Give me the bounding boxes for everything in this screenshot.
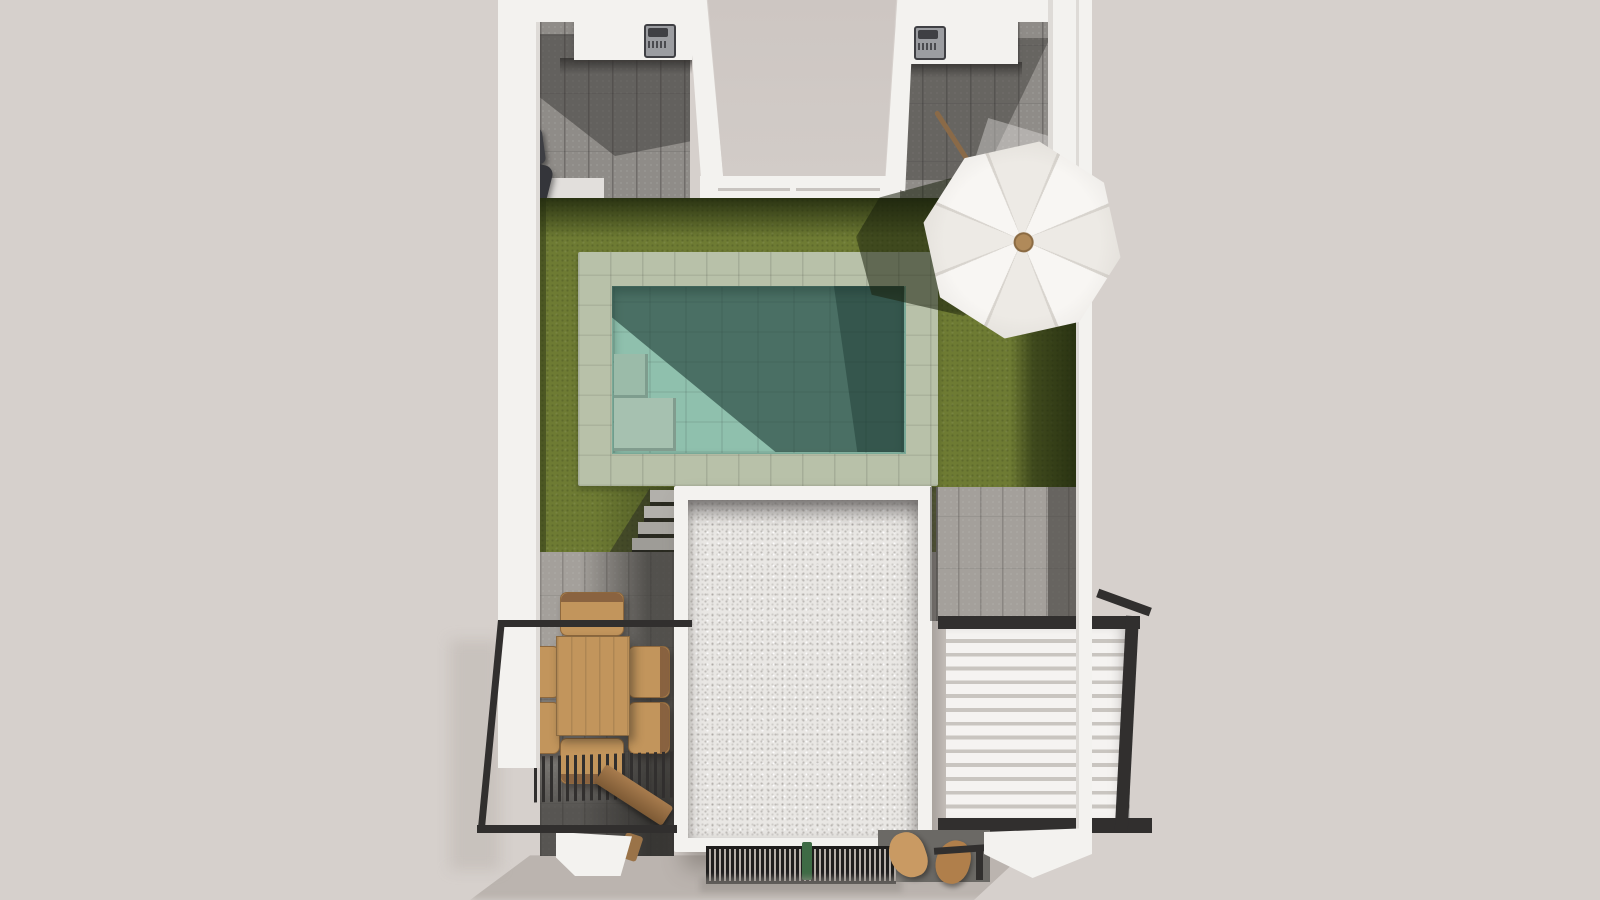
lounge-bracket-v (976, 846, 983, 880)
left-wing-counter-shadow (560, 58, 692, 74)
chair-backrest (561, 593, 623, 602)
balcony-railing-bottom (477, 825, 677, 833)
boundary-wall-left (498, 0, 540, 768)
render-canvas (0, 0, 1600, 900)
gravel-roof (674, 486, 932, 852)
upper-terrace-floor (704, 0, 900, 182)
chair-backrest (660, 703, 669, 753)
plant-post (802, 842, 812, 880)
grill-left-icon (644, 24, 676, 58)
dining-chair-right-2 (628, 702, 670, 754)
grill-left-lid (648, 28, 668, 37)
gravel-roof-surface (688, 500, 918, 838)
louvered-roof (936, 592, 1152, 837)
stair-step (632, 538, 678, 550)
boundary-wall-right (1076, 0, 1092, 834)
louver-corner-post (1096, 589, 1152, 617)
boundary-wall-top-left (498, 0, 700, 22)
louver-frame-top (938, 616, 1140, 629)
grill-left-grate (648, 41, 668, 48)
terrace-door-track-left (718, 188, 790, 191)
dining-table (556, 636, 630, 736)
grill-right-grate (918, 43, 938, 50)
terrace-door-track-right (796, 188, 880, 191)
lawn-left-wall-shadow (540, 198, 546, 552)
grill-right-icon (914, 26, 946, 60)
grate-shadow (700, 877, 902, 892)
chair-backrest (660, 647, 669, 697)
pool-steps (614, 398, 676, 451)
right-wing-counter-shadow (898, 62, 1022, 78)
dining-chair-top (560, 592, 624, 636)
grill-right-lid (918, 30, 938, 39)
dining-chair-right-1 (628, 646, 670, 698)
pool-step-upper (614, 354, 648, 398)
balcony-railing-top (498, 620, 692, 627)
louver-slats (946, 629, 1130, 821)
